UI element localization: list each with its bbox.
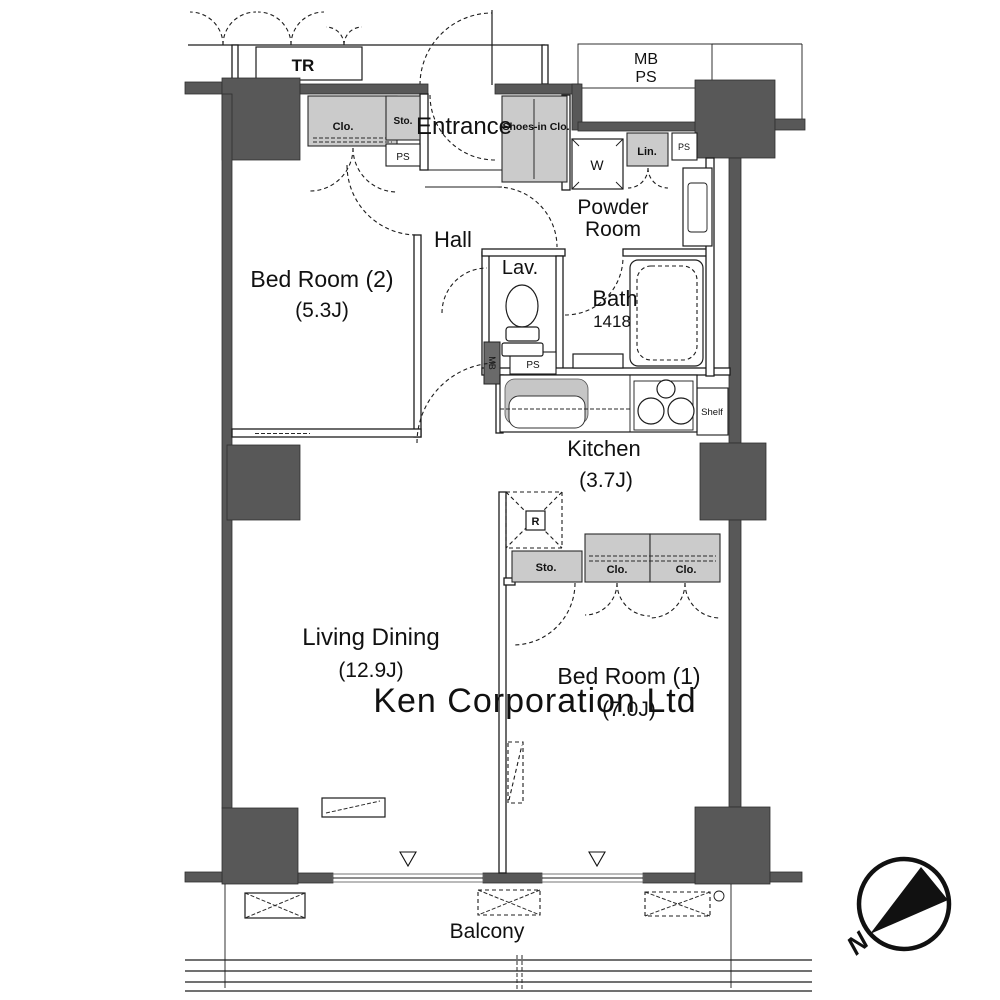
drain-icon	[714, 891, 724, 901]
room-label-balcony: Balcony	[450, 920, 525, 943]
room-label-kitchen: Kitchen	[567, 436, 640, 461]
room-label-meter-shaft-1: MB	[634, 51, 658, 68]
room-size-bath: 1418	[593, 312, 631, 331]
vanity-counter	[683, 168, 712, 246]
stove-burner	[638, 398, 664, 424]
toilet	[502, 285, 543, 356]
window-marker-icon	[400, 852, 416, 866]
room-label-bedroom2: Bed Room (2)	[250, 266, 393, 292]
ac-outdoor-unit	[645, 892, 710, 916]
ac-outdoor-unit	[478, 890, 540, 915]
feature-label-meter-box: MB	[487, 356, 497, 370]
room-label-living: Living Dining	[302, 624, 439, 651]
feature-label-shelf: Shelf	[701, 407, 723, 418]
tv-board	[322, 798, 385, 817]
room-label-lavatory: Lav.	[502, 257, 538, 279]
sink	[509, 396, 585, 428]
room-label-powder-1: Powder	[577, 196, 648, 219]
room-label-entrance: Entrance	[416, 113, 512, 140]
ac-outdoor-unit	[245, 893, 305, 918]
trunk-room-structure	[188, 12, 548, 84]
feature-label-storage-bedroom1: Sto.	[536, 562, 557, 574]
compass-icon: N	[841, 859, 949, 961]
room-label-meter-shaft-2: PS	[635, 69, 656, 86]
room-label-trunk: TR	[292, 56, 315, 75]
wall-ac-unit	[508, 742, 523, 803]
stove-burner	[668, 398, 694, 424]
feature-label-closet2-bedroom1: Clo.	[676, 564, 697, 576]
feature-label-ps-lav: PS	[526, 360, 540, 371]
room-label-bath: Bath	[592, 286, 637, 311]
feature-label-refrigerator: R	[532, 516, 540, 528]
feature-label-storage-top: Sto.	[394, 116, 413, 127]
stove-burner	[657, 380, 675, 398]
room-size-bedroom1: (7.0J)	[602, 698, 656, 721]
kitchen-counter	[500, 375, 697, 432]
feature-label-ps-linen: PS	[678, 142, 690, 152]
room-size-bedroom2: (5.3J)	[295, 299, 349, 322]
room-size-living: (12.9J)	[338, 659, 403, 682]
room-label-bedroom1: Bed Room (1)	[557, 663, 700, 689]
feature-label-linen: Lin.	[637, 146, 657, 158]
window-marker-icon	[589, 852, 605, 866]
feature-label-ps-top: PS	[396, 152, 410, 163]
room-label-hall: Hall	[434, 227, 472, 252]
feature-label-washer: W	[590, 157, 604, 173]
floorplan: N Ken Corporation Ltd Bed Room (2) (5.3J…	[0, 0, 1000, 1000]
room-size-kitchen: (3.7J)	[579, 469, 633, 492]
feature-label-closet1-bedroom1: Clo.	[607, 564, 628, 576]
feature-label-closet-bedroom2: Clo.	[333, 121, 354, 133]
floorplan-page: N Ken Corporation Ltd Bed Room (2) (5.3J…	[0, 0, 1000, 1000]
room-label-powder-2: Room	[585, 218, 641, 241]
interior-walls	[232, 94, 730, 873]
feature-label-shoes-closet: Shoes-in Clo.	[502, 121, 569, 133]
